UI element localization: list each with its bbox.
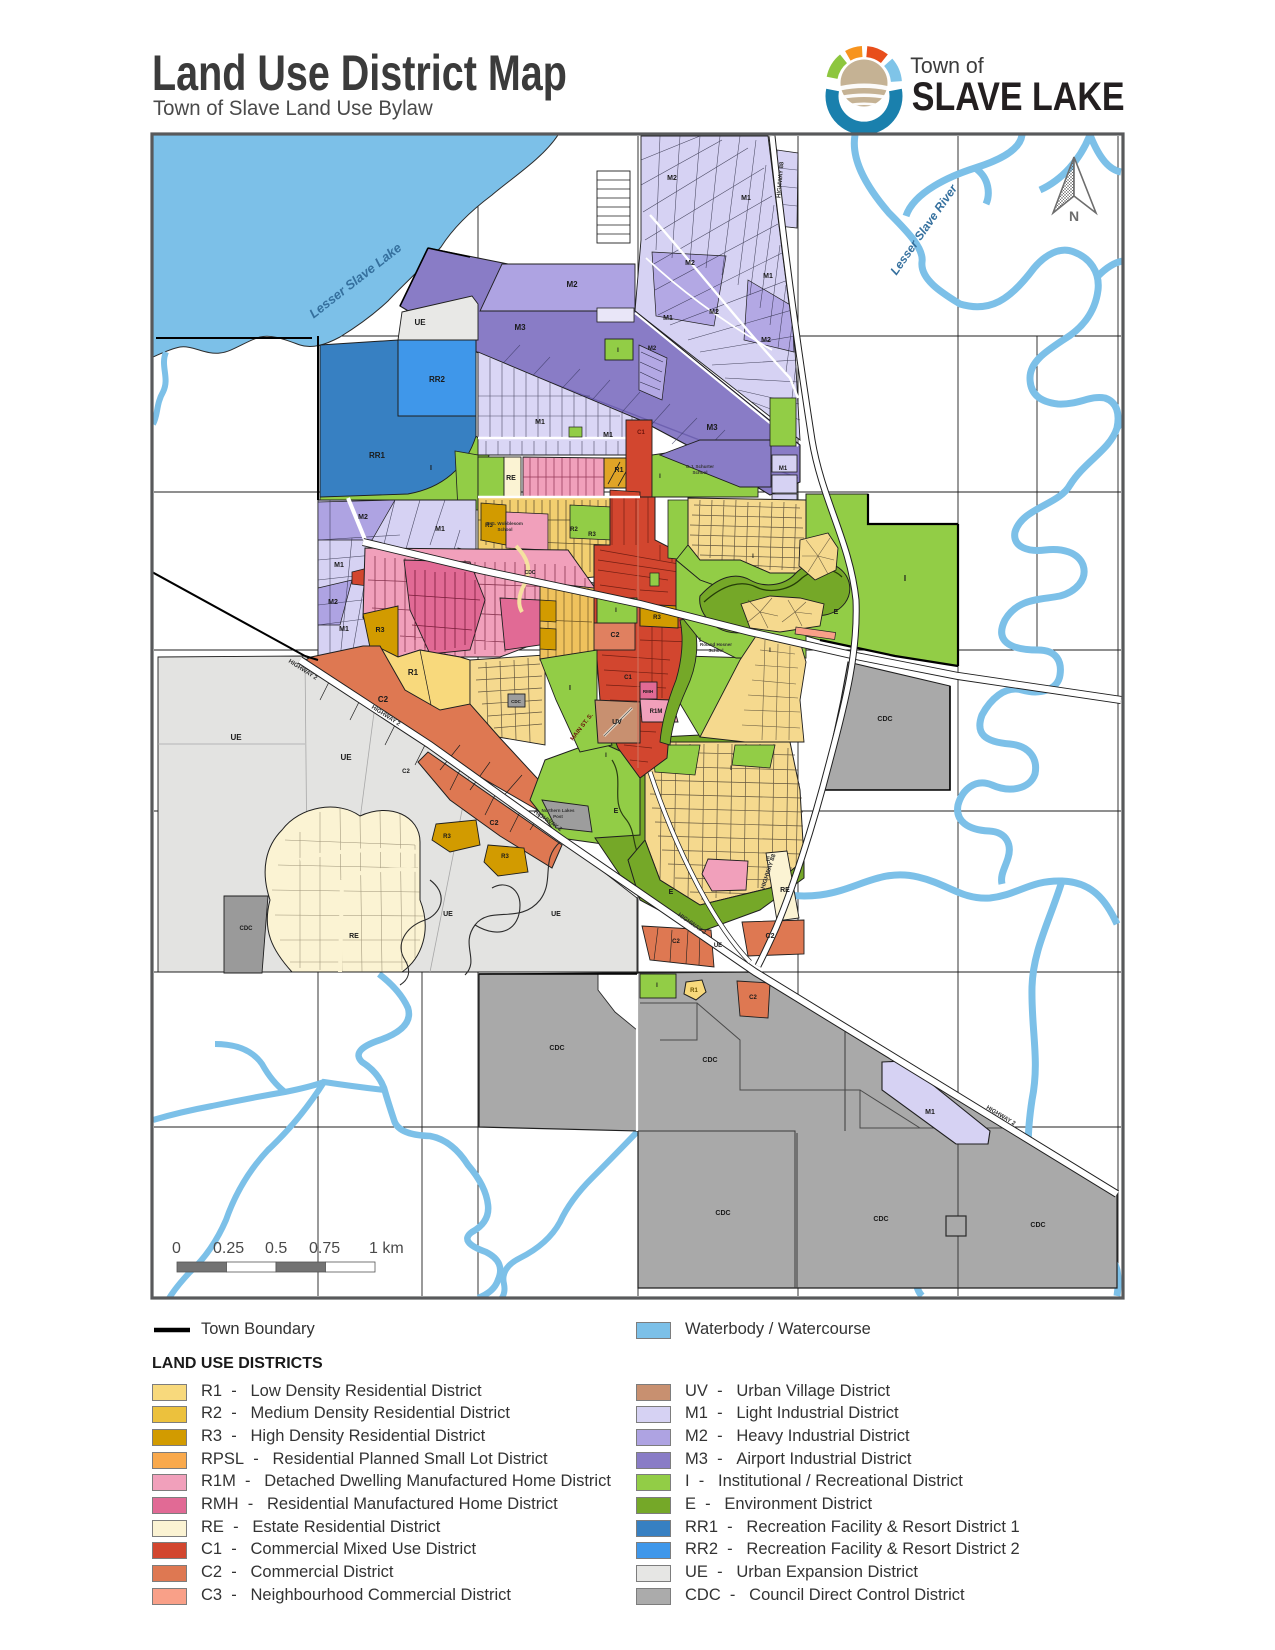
svg-text:UE: UE	[340, 753, 352, 762]
svg-text:UV: UV	[612, 719, 622, 726]
svg-text:UE: UE	[714, 943, 722, 949]
svg-text:M2: M2	[648, 346, 657, 352]
svg-text:C.J. Schurter: C.J. Schurter	[686, 464, 714, 469]
svg-text:0: 0	[172, 1240, 181, 1257]
svg-text:CDC: CDC	[715, 1210, 730, 1217]
svg-text:0.5: 0.5	[265, 1240, 287, 1257]
svg-text:M1: M1	[603, 432, 613, 439]
svg-text:I: I	[904, 574, 906, 583]
svg-text:R3: R3	[501, 854, 509, 860]
svg-text:School: School	[708, 648, 723, 653]
svg-text:M1: M1	[663, 315, 673, 322]
svg-text:M3: M3	[706, 423, 718, 432]
svg-text:CDC: CDC	[511, 699, 521, 704]
svg-text:0.75: 0.75	[309, 1240, 340, 1257]
svg-text:E: E	[669, 889, 674, 896]
svg-text:Roland Hosner: Roland Hosner	[700, 642, 732, 647]
svg-text:C2: C2	[378, 695, 389, 704]
svg-text:R1: R1	[615, 467, 624, 474]
svg-text:R3: R3	[653, 615, 661, 621]
svg-text:M1: M1	[334, 562, 344, 569]
svg-text:CDC: CDC	[525, 570, 536, 576]
svg-text:M1: M1	[535, 419, 545, 426]
svg-text:M2: M2	[685, 260, 695, 267]
svg-text:M2: M2	[667, 175, 677, 182]
svg-text:RR1: RR1	[369, 451, 386, 460]
svg-text:School: School	[692, 470, 707, 475]
svg-text:C2: C2	[611, 632, 620, 639]
svg-text:R1M: R1M	[650, 709, 663, 715]
svg-text:M2: M2	[328, 599, 338, 606]
svg-text:M1: M1	[763, 273, 773, 280]
svg-text:E.G. Wobblesom: E.G. Wobblesom	[487, 521, 523, 526]
svg-text:R3: R3	[588, 532, 596, 538]
svg-text:M1: M1	[435, 526, 445, 533]
svg-text:RE: RE	[349, 933, 359, 940]
svg-text:M3: M3	[514, 323, 526, 332]
svg-text:UE: UE	[230, 733, 242, 742]
svg-text:R2: R2	[570, 527, 578, 533]
svg-text:E: E	[834, 609, 839, 616]
svg-text:R1: R1	[408, 668, 419, 677]
svg-text:M1: M1	[779, 466, 788, 472]
svg-text:I: I	[430, 465, 432, 472]
svg-text:R3: R3	[376, 627, 385, 634]
svg-text:CDC: CDC	[240, 926, 254, 932]
svg-text:I: I	[569, 685, 571, 692]
svg-text:R1: R1	[690, 988, 698, 994]
svg-text:UE: UE	[414, 318, 426, 327]
svg-text:N: N	[1069, 208, 1079, 224]
svg-text:CDC: CDC	[1030, 1222, 1045, 1229]
svg-text:RR2: RR2	[429, 375, 446, 384]
svg-text:C2: C2	[672, 939, 680, 945]
svg-text:E: E	[614, 808, 619, 815]
svg-text:RE: RE	[506, 475, 516, 482]
svg-text:UE: UE	[551, 911, 561, 918]
svg-text:C2: C2	[766, 933, 775, 940]
svg-text:CDC: CDC	[549, 1045, 564, 1052]
svg-text:School: School	[497, 527, 512, 532]
svg-text:M1: M1	[339, 626, 349, 633]
svg-text:M2: M2	[358, 514, 368, 521]
svg-text:CDC: CDC	[873, 1216, 888, 1223]
svg-text:M1: M1	[925, 1109, 935, 1116]
svg-text:RMH: RMH	[643, 689, 653, 694]
svg-text:Post: Post	[553, 814, 563, 819]
svg-text:C2: C2	[749, 995, 757, 1001]
svg-text:C1: C1	[624, 675, 632, 681]
svg-text:CDC: CDC	[702, 1057, 717, 1064]
svg-text:1 km: 1 km	[369, 1240, 404, 1257]
svg-text:M1: M1	[741, 195, 751, 202]
svg-text:C1: C1	[637, 430, 645, 436]
svg-text:C2: C2	[490, 820, 499, 827]
svg-text:CDC: CDC	[877, 716, 892, 723]
svg-text:M2: M2	[709, 309, 719, 316]
svg-text:0.25: 0.25	[213, 1240, 244, 1257]
svg-text:Northern Lakes: Northern Lakes	[541, 808, 575, 813]
svg-text:RE: RE	[780, 887, 790, 894]
svg-text:M2: M2	[761, 337, 771, 344]
svg-text:C2: C2	[402, 769, 410, 775]
svg-text:UE: UE	[443, 911, 453, 918]
svg-text:M2: M2	[566, 280, 578, 289]
svg-text:R3: R3	[443, 834, 451, 840]
